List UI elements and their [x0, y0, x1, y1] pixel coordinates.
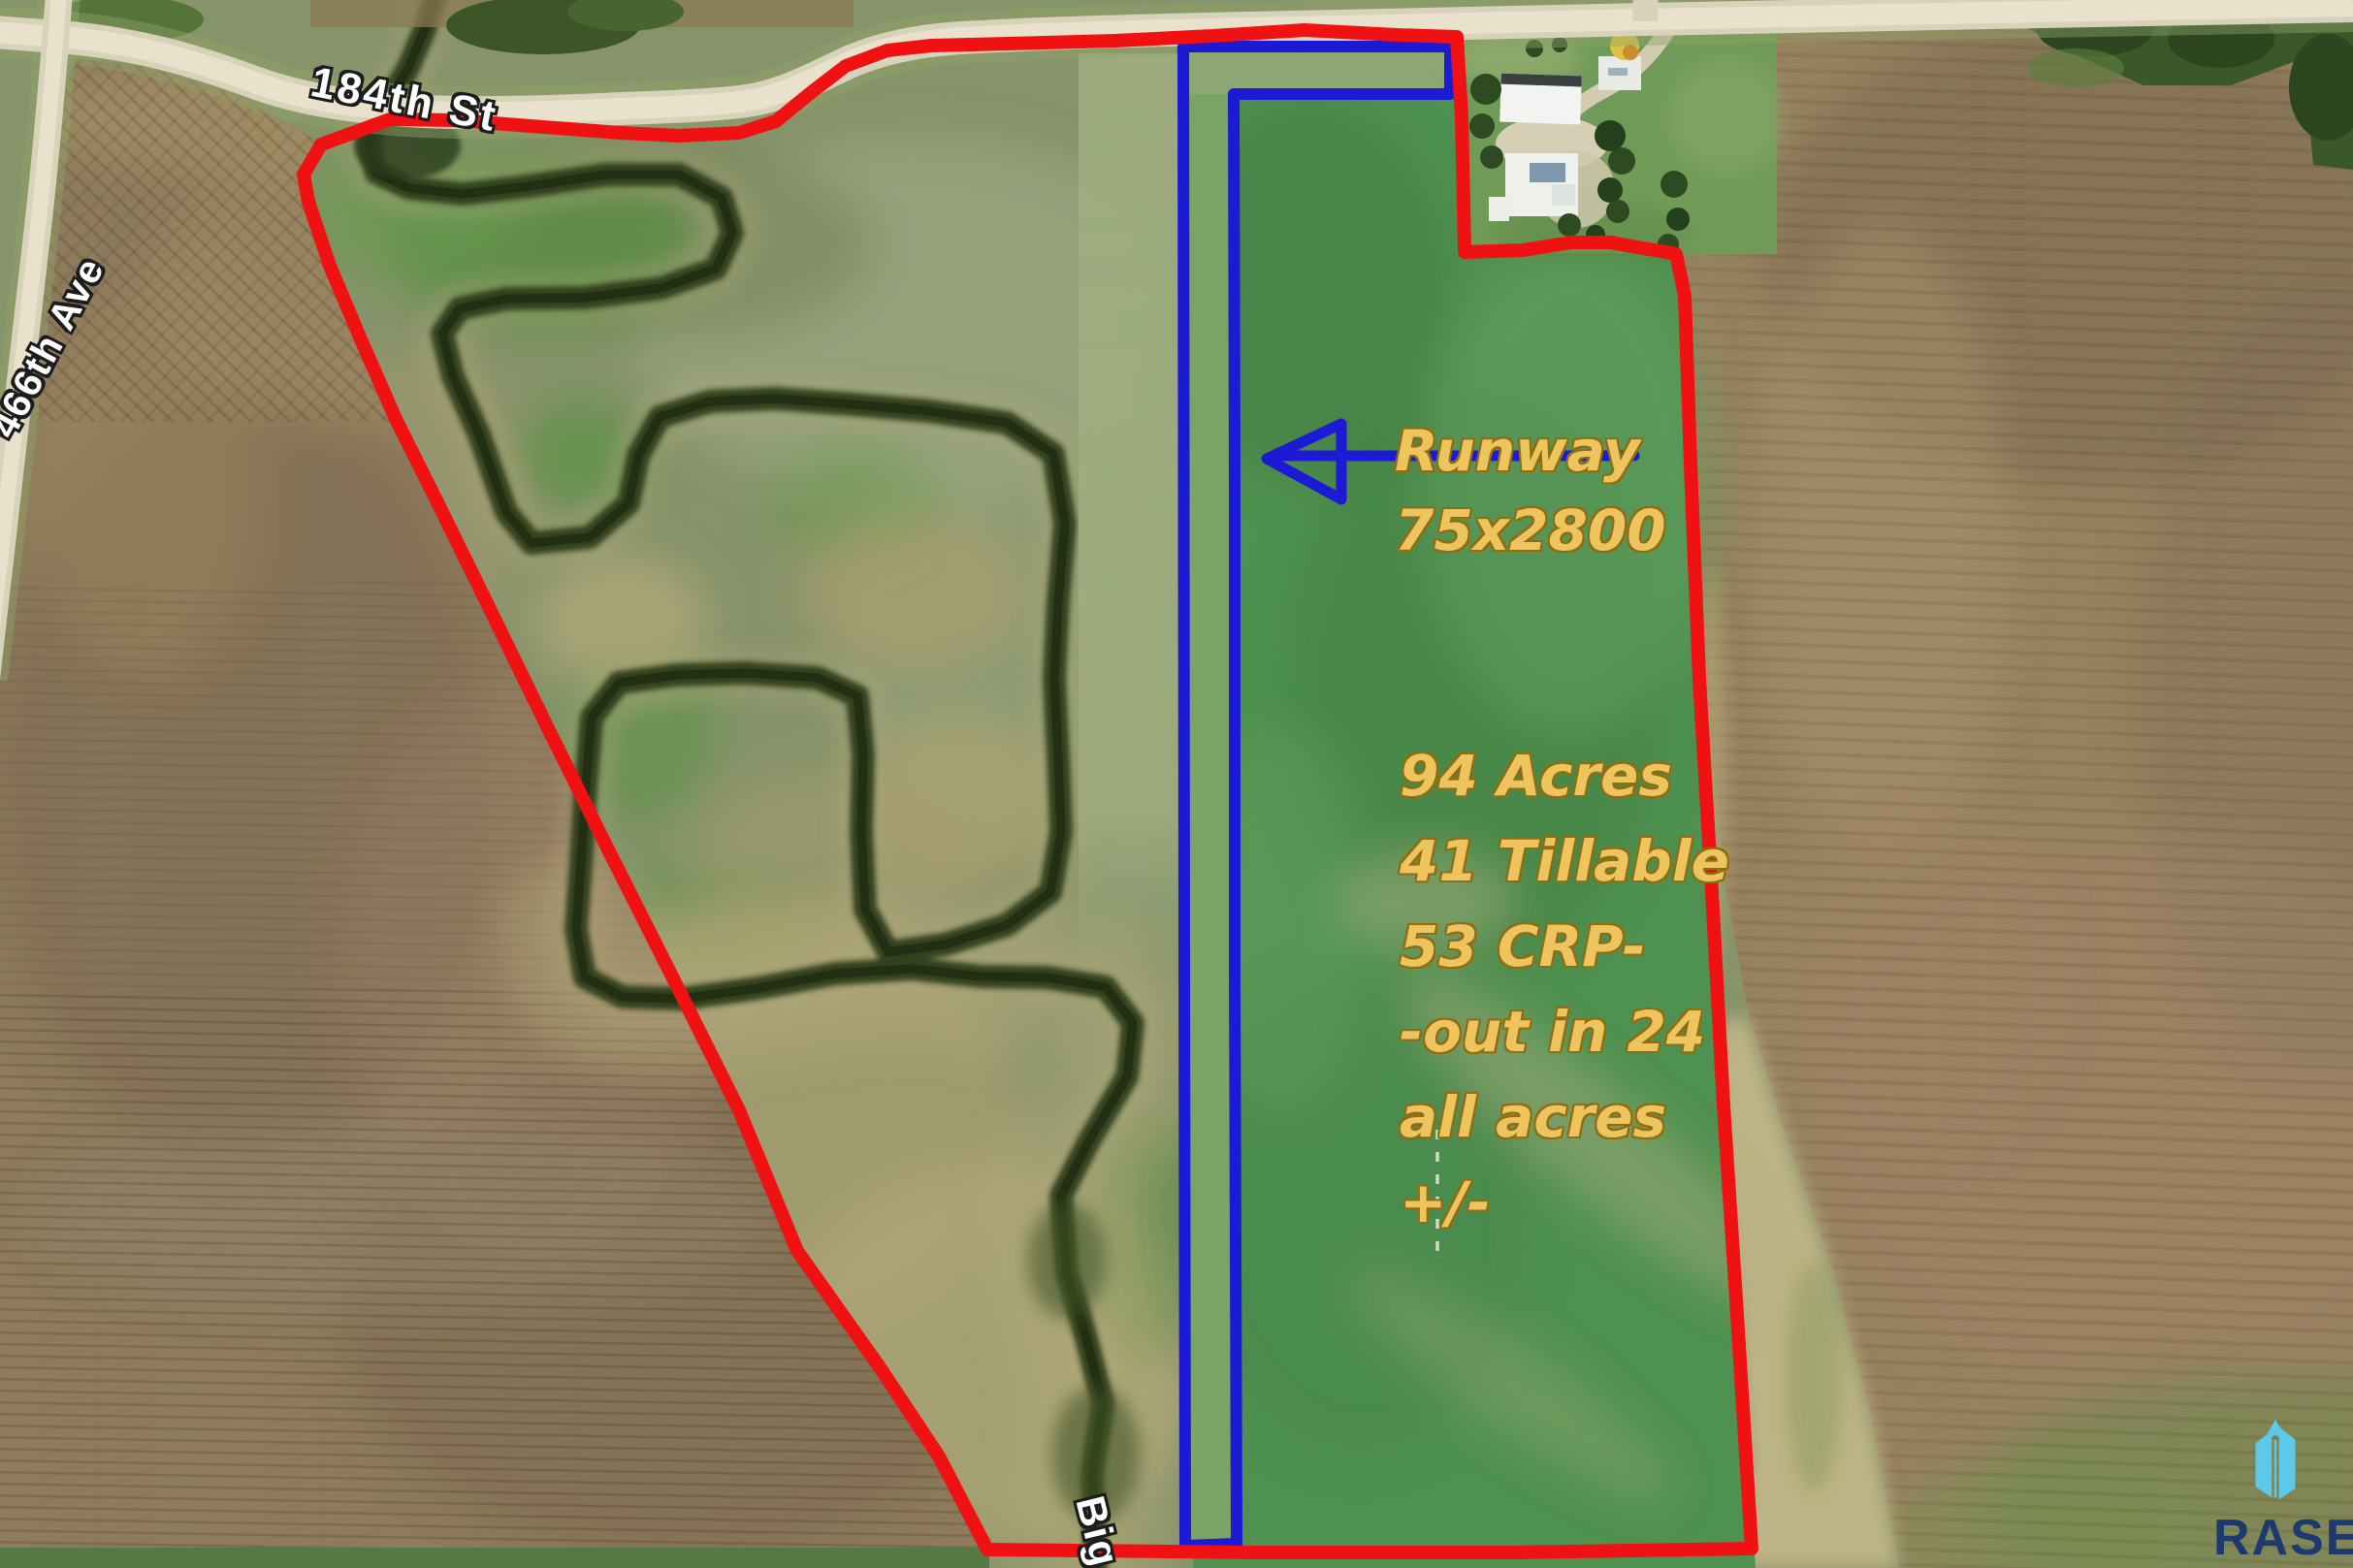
rase-box-arrow-icon — [2248, 1420, 2303, 1503]
acreage-line: 41 Tillable — [1400, 818, 1729, 904]
runway-annotation: Runway 75x2800 — [1395, 411, 1666, 570]
aerial-property-map: 184th St 466th Ave Big Sioux River Runwa… — [0, 0, 2353, 1568]
rase-logo-text: RASE — [2213, 1509, 2353, 1567]
acreage-line: +/- — [1400, 1160, 1729, 1245]
rase-logo: RASE — [2209, 1416, 2353, 1568]
bottom-grass-strip — [0, 1548, 989, 1568]
crp-strip — [1079, 53, 1181, 975]
acreage-annotation: 94 Acres 41 Tillable 53 CRP- -out in 24 … — [1400, 733, 1729, 1245]
satellite-background — [0, 0, 2353, 1568]
acreage-line: -out in 24 — [1400, 989, 1729, 1074]
road-north-stub — [1645, 0, 1646, 21]
runway-annotation-line1: Runway — [1395, 411, 1666, 491]
acreage-line: all acres — [1400, 1074, 1729, 1160]
acreage-line: 53 CRP- — [1400, 904, 1729, 989]
runway-grass-strip — [1185, 94, 1234, 1545]
farmstead — [1445, 27, 1785, 262]
acreage-line: 94 Acres — [1400, 733, 1729, 818]
runway-annotation-line2: 75x2800 — [1395, 491, 1666, 570]
